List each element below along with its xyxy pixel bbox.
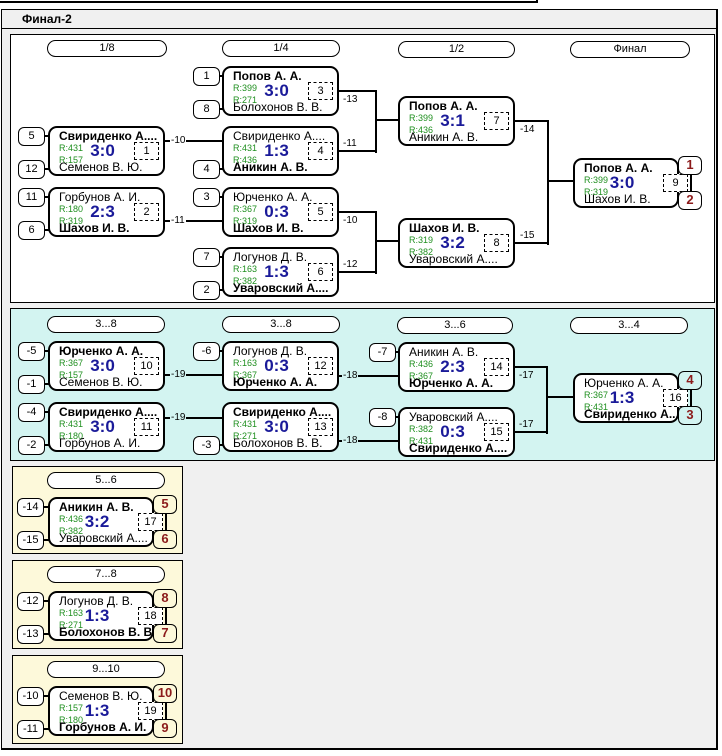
place-box: 5 — [153, 495, 177, 514]
place-box: 3 — [678, 406, 702, 425]
player-name-bottom: Болохонов В. В. — [233, 437, 323, 450]
match-number-box: 17 — [138, 513, 163, 531]
seed-box: -1 — [18, 375, 45, 394]
seed-box: 5 — [18, 127, 45, 146]
match-number-box: 8 — [484, 234, 509, 252]
seed-box: -3 — [193, 436, 220, 455]
seed-box: 8 — [193, 100, 220, 119]
partial-window-box — [0, 0, 538, 3]
bracket-connector-line — [337, 90, 377, 92]
player-name-bottom: Болохонов В. В. — [233, 101, 323, 114]
player-name-bottom: Уваровский А.... — [233, 282, 328, 295]
loser-destination-label: -18 — [342, 371, 358, 381]
place-box: 9 — [153, 719, 177, 738]
bracket-connector-line — [337, 271, 377, 273]
loser-destination-label: -19 — [170, 370, 186, 380]
seed-box: -4 — [18, 403, 45, 422]
match-number-box: 4 — [308, 142, 333, 160]
bracket-connector-line — [547, 121, 549, 245]
seed-box: -14 — [17, 498, 44, 517]
loser-destination-label: -14 — [519, 125, 535, 135]
bracket-connector-line — [513, 120, 549, 122]
place-box: 10 — [153, 684, 177, 703]
bracket-connector-line — [513, 242, 549, 244]
match-number-box: 7 — [484, 112, 509, 130]
seed-box: -2 — [18, 436, 45, 455]
seed-box: -8 — [369, 408, 396, 427]
seed-box: -13 — [17, 625, 44, 644]
seed-box: -10 — [17, 687, 44, 706]
loser-destination-label: -11 — [170, 216, 186, 226]
seed-box: -11 — [17, 720, 44, 739]
match-number-box: 19 — [138, 702, 163, 720]
loser-destination-label: -19 — [170, 413, 186, 423]
bracket-connector-line — [375, 240, 398, 242]
seed-box: -6 — [193, 342, 220, 361]
bracket-connector-line — [547, 180, 573, 182]
page-title: Финал-2 — [22, 12, 72, 26]
player-name-bottom: Шахов И. В. — [233, 222, 303, 235]
player-name-bottom: Семенов В. Ю. — [59, 161, 142, 174]
round-header: 1/8 — [47, 40, 167, 57]
player-name-bottom: Уваровский А.... — [59, 532, 148, 545]
place-box: 2 — [678, 191, 702, 210]
loser-destination-label: -13 — [342, 95, 358, 105]
player-name-bottom: Юрченко А. А. — [409, 377, 493, 390]
match-number-box: 1 — [134, 142, 159, 160]
seed-box: 4 — [193, 160, 220, 179]
loser-destination-label: -18 — [342, 436, 358, 446]
player-name-bottom: Юрченко А. А. — [233, 376, 317, 389]
round-header: 1/4 — [222, 40, 340, 57]
place-box: 6 — [153, 530, 177, 549]
player-name-bottom: Семенов В. Ю. — [59, 376, 142, 389]
round-header: 3...6 — [397, 317, 513, 334]
match-number-box: 12 — [308, 357, 333, 375]
loser-destination-label: -11 — [342, 139, 358, 149]
player-name-bottom: Горбунов А. И. — [59, 437, 140, 450]
match-number-box: 9 — [663, 174, 688, 192]
place-box: 1 — [678, 156, 702, 175]
round-header: 3...4 — [570, 317, 688, 334]
round-header: 5...6 — [47, 472, 165, 489]
seed-box: -7 — [369, 343, 396, 362]
bracket-connector-line — [513, 366, 548, 368]
round-header: 3...8 — [47, 316, 165, 333]
player-name-bottom: Уваровский А.... — [409, 253, 498, 266]
match-number-box: 15 — [484, 423, 509, 441]
bracket-connector-line — [375, 212, 377, 274]
match-number-box: 6 — [308, 263, 333, 281]
player-name-bottom: Свириденко А.... — [584, 408, 682, 421]
match-number-box: 2 — [134, 203, 159, 221]
loser-destination-label: -10 — [342, 216, 358, 226]
seed-box: -15 — [17, 531, 44, 550]
player-name-bottom: Шахов И. В. — [59, 222, 129, 235]
player-name-bottom: Болохонов В. В. — [59, 626, 155, 639]
player-name-bottom: Аникин А. В. — [409, 131, 478, 144]
tournament-bracket-window: Финал-2 1/81/41/2Финал3...83...83...63..… — [0, 0, 722, 756]
place-box: 8 — [153, 589, 177, 608]
loser-destination-label: -15 — [519, 231, 535, 241]
seed-box: 7 — [193, 248, 220, 267]
player-name-bottom: Шахов И. В. — [584, 193, 651, 206]
match-number-box: 18 — [138, 607, 163, 625]
match-number-box: 13 — [308, 418, 333, 436]
round-header: Финал — [570, 41, 690, 58]
match-number-box: 16 — [663, 389, 688, 407]
seed-box: 11 — [18, 188, 45, 207]
bracket-connector-line — [513, 431, 548, 433]
loser-destination-label: -12 — [342, 260, 358, 270]
seed-box: -5 — [18, 342, 45, 361]
bracket-connector-line — [337, 211, 377, 213]
match-number-box: 11 — [134, 418, 159, 436]
loser-destination-label: -17 — [518, 420, 534, 430]
round-header: 3...8 — [222, 316, 340, 333]
player-name-bottom: Горбунов А. И. — [59, 721, 146, 734]
seed-box: -12 — [17, 592, 44, 611]
round-header: 1/2 — [398, 41, 515, 58]
round-header: 9...10 — [47, 661, 165, 678]
bracket-connector-line — [546, 367, 548, 434]
seed-box: 3 — [193, 188, 220, 207]
groupbox-header: Финал-2 — [2, 10, 716, 29]
seed-box: 12 — [18, 160, 45, 179]
bracket-connector-line — [375, 91, 377, 153]
player-name-bottom: Аникин А. В. — [233, 161, 308, 174]
loser-destination-label: -10 — [170, 136, 186, 146]
bracket-connector-line — [337, 150, 377, 152]
seed-box: 2 — [193, 281, 220, 300]
loser-destination-label: -17 — [518, 371, 534, 381]
bracket-connector-line — [546, 396, 573, 398]
player-name-bottom: Свириденко А.... — [409, 442, 507, 455]
seed-box: 6 — [18, 221, 45, 240]
match-number-box: 14 — [484, 358, 509, 376]
bracket-connector-line — [375, 119, 398, 121]
match-number-box: 3 — [308, 82, 333, 100]
match-number-box: 10 — [134, 357, 159, 375]
match-number-box: 5 — [308, 203, 333, 221]
place-box: 7 — [153, 624, 177, 643]
round-header: 7...8 — [47, 566, 165, 583]
place-box: 4 — [678, 371, 702, 390]
seed-box: 1 — [193, 67, 220, 86]
